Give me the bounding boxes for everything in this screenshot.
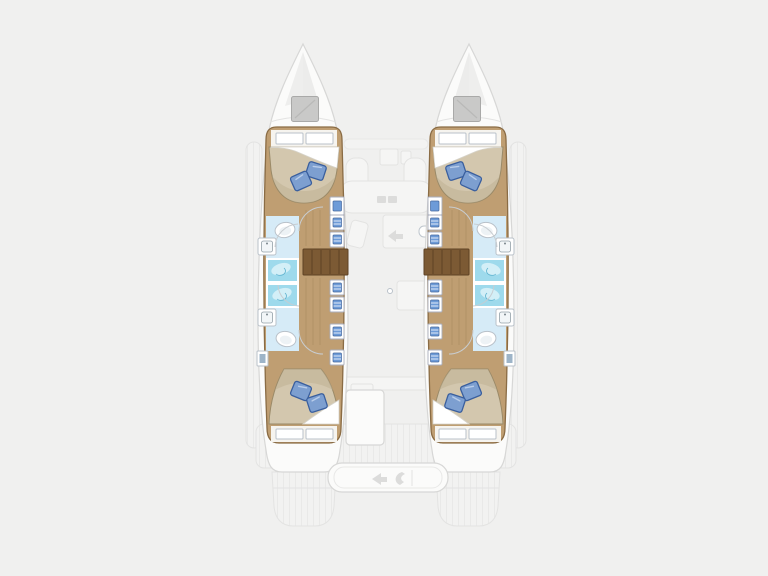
floorplan-canvas: [0, 0, 768, 576]
coachroof-front: [344, 139, 428, 149]
cockpit-table: [346, 384, 384, 445]
roof-hatch: [380, 149, 398, 165]
cockpit-bench: [328, 463, 448, 492]
right-hull: [424, 44, 515, 526]
left-hull: [257, 44, 348, 526]
catamaran-floorplan: [0, 0, 768, 576]
chart-seat: [346, 219, 369, 248]
